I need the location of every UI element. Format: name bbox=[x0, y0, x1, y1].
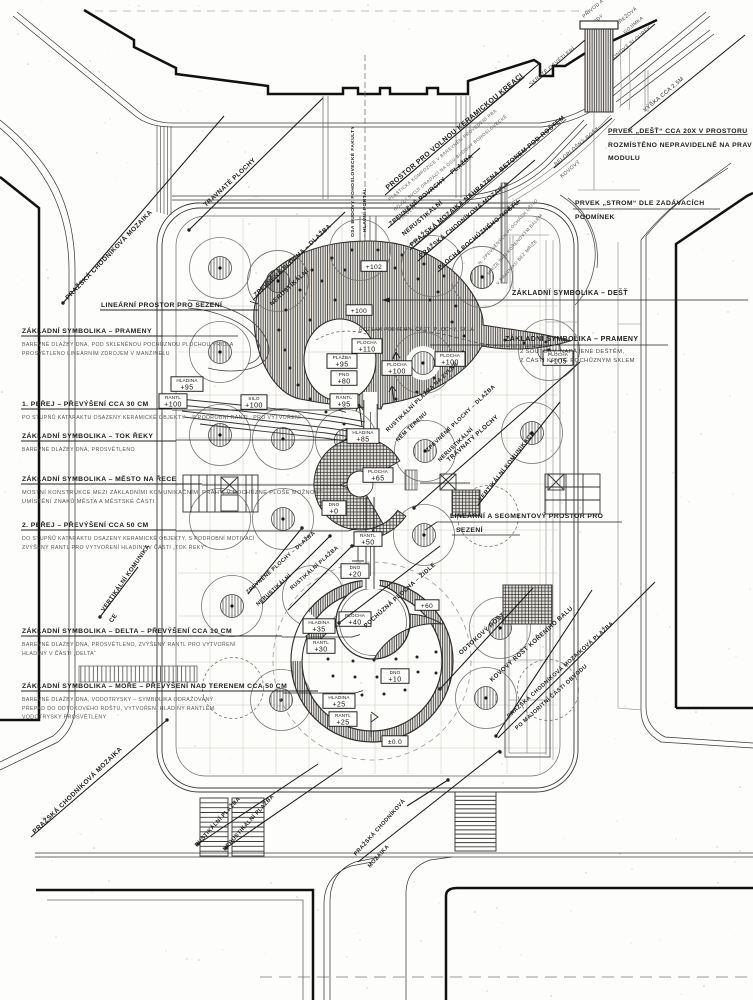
svg-text:SILO: SILO bbox=[248, 396, 259, 401]
svg-text:DNO: DNO bbox=[390, 670, 401, 675]
svg-text:+100: +100 bbox=[164, 401, 182, 408]
svg-text:+80: +80 bbox=[337, 378, 350, 385]
svg-text:+100: +100 bbox=[388, 368, 406, 375]
svg-text:LINEÁRNÍ PROSTOR PRO SEZENÍ: LINEÁRNÍ PROSTOR PRO SEZENÍ bbox=[101, 300, 223, 309]
svg-text:BAREVNÉ DLAŽBY DNA, PROSVĚTLEN: BAREVNÉ DLAŽBY DNA, PROSVĚTLENO bbox=[22, 445, 135, 453]
svg-text:ZÁKLADNÍ SYMBOLIKA – DEŠŤ: ZÁKLADNÍ SYMBOLIKA – DEŠŤ bbox=[512, 288, 628, 297]
svg-text:+25: +25 bbox=[332, 701, 345, 708]
svg-text:2. PEŘEJ – PŘEVÝŠENÍ CCA 50 CM: 2. PEŘEJ – PŘEVÝŠENÍ CCA 50 CM bbox=[22, 520, 149, 529]
svg-text:ZÁKLADNÍ SYMBOLIKA – PRAMENY: ZÁKLADNÍ SYMBOLIKA – PRAMENY bbox=[22, 326, 152, 335]
svg-text:+25: +25 bbox=[336, 719, 349, 726]
svg-text:MOSTNÍ KONSTRUKCE MEZI ZÁKLADN: MOSTNÍ KONSTRUKCE MEZI ZÁKLADNÍMI KOMUNI… bbox=[22, 488, 323, 496]
svg-text:ZÁKLADNÍ SYMBOLIKA – DELTA – P: ZÁKLADNÍ SYMBOLIKA – DELTA – PŘEVÝŠENÍ C… bbox=[22, 626, 232, 635]
svg-text:HLADINY V ČÁSTI „DELTA“: HLADINY V ČÁSTI „DELTA“ bbox=[22, 650, 96, 657]
svg-text:+50: +50 bbox=[361, 539, 374, 546]
svg-text:BAREVNÉ DLAŽBY DNA, PROSVĚTLEN: BAREVNÉ DLAŽBY DNA, PROSVĚTLENO, ZVÝŠENÝ… bbox=[22, 640, 236, 648]
svg-text:ZÁKLADNÍ SYMBOLIKA – MĚSTO NA: ZÁKLADNÍ SYMBOLIKA – MĚSTO NA ŘECE bbox=[22, 474, 177, 483]
svg-text:HLADINA: HLADINA bbox=[328, 695, 350, 700]
svg-text:DNO: DNO bbox=[329, 502, 340, 507]
svg-text:+100: +100 bbox=[351, 308, 367, 315]
svg-text:ZVÝŠENÝ RANTL PRO VYTVOŘENÍ HL: ZVÝŠENÝ RANTL PRO VYTVOŘENÍ HLADINY V ČÁ… bbox=[22, 543, 207, 551]
svg-text:ZÁKLADNÍ SYMBOLIKA – TOK ŘEKY: ZÁKLADNÍ SYMBOLIKA – TOK ŘEKY bbox=[22, 431, 153, 440]
svg-text:PNO: PNO bbox=[339, 372, 350, 377]
svg-text:VODOTRYSKY PROSVĚTLENY: VODOTRYSKY PROSVĚTLENY bbox=[22, 713, 107, 721]
svg-text:±0.0: ±0.0 bbox=[388, 739, 402, 746]
svg-text:RANTL: RANTL bbox=[335, 713, 351, 718]
svg-text:1. PEŘEJ – PŘEVÝŠENÍ CCA 30 CM: 1. PEŘEJ – PŘEVÝŠENÍ CCA 30 CM bbox=[22, 399, 149, 408]
svg-text:RANTL: RANTL bbox=[165, 395, 181, 400]
svg-text:RANTL: RANTL bbox=[360, 533, 376, 538]
svg-text:+110: +110 bbox=[358, 346, 375, 353]
svg-text:ROZMÍSTĚNO NEPRAVIDELNĚ NA PRA: ROZMÍSTĚNO NEPRAVIDELNĚ NA PRAV bbox=[608, 140, 752, 149]
svg-text:RANTL: RANTL bbox=[336, 395, 352, 400]
svg-text:+60: +60 bbox=[421, 603, 433, 610]
svg-text:+10: +10 bbox=[388, 676, 401, 683]
svg-text:BAREVNÉ DLAŽBY DNA, POD SKLENĚ: BAREVNÉ DLAŽBY DNA, POD SKLENĚNOU POCHŮZ… bbox=[22, 340, 234, 348]
svg-text:UMÍSTĚNÍ ZNAKŮ MĚSTA A MĚSTSKÉ: UMÍSTĚNÍ ZNAKŮ MĚSTA A MĚSTSKÉ ČÁSTI bbox=[22, 497, 155, 505]
svg-text:ROZSAH PODZEMNÍ ČÁSTI PLOCHY,: ROZSAH PODZEMNÍ ČÁSTI PLOCHY, SKLA bbox=[359, 326, 474, 333]
svg-text:+20: +20 bbox=[348, 571, 361, 578]
svg-text:BAREVNÉ DLAŽBY DNA, VODOTRYSKY: BAREVNÉ DLAŽBY DNA, VODOTRYSKY – SYMBOLI… bbox=[22, 695, 214, 703]
svg-text:DO STUPŇŮ KATARAKTU OSAZENY KE: DO STUPŇŮ KATARAKTU OSAZENY KERAMICKÉ OB… bbox=[22, 535, 255, 542]
svg-text:PO STUPŇŮ KATARAKTU OSAZENY KE: PO STUPŇŮ KATARAKTU OSAZENY KERAMICKÉ OB… bbox=[22, 413, 301, 421]
svg-text:+95: +95 bbox=[180, 384, 193, 391]
svg-text:HLADINA: HLADINA bbox=[308, 620, 330, 625]
svg-text:+40: +40 bbox=[348, 619, 361, 626]
svg-text:+95: +95 bbox=[335, 361, 348, 368]
svg-text:MODULU: MODULU bbox=[608, 155, 640, 162]
svg-text:+100: +100 bbox=[245, 402, 263, 409]
svg-text:+0: +0 bbox=[330, 508, 339, 515]
svg-text:+95: +95 bbox=[337, 401, 350, 408]
svg-text:PROSVĚTLENO LINEÁRNÍM ZDROJEM: PROSVĚTLENO LINEÁRNÍM ZDROJEM V MANŽINEL… bbox=[22, 349, 170, 357]
svg-text:PRVEK „DEŠŤ“ CCA 20X V PROSTOR: PRVEK „DEŠŤ“ CCA 20X V PROSTORU bbox=[608, 126, 748, 135]
svg-text:+65: +65 bbox=[371, 475, 384, 482]
svg-text:2 SOUTOKY, NAPÁJENÉ DEŠTĚM,: 2 SOUTOKY, NAPÁJENÉ DEŠTĚM, bbox=[520, 347, 624, 355]
svg-text:HLADINA: HLADINA bbox=[352, 430, 374, 435]
svg-text:PLOCHA: PLOCHA bbox=[368, 469, 389, 474]
svg-text:SEZENÍ: SEZENÍ bbox=[456, 525, 484, 534]
svg-text:Z ČÁSTI KRYTÉ POCHŮZNÝM SKLEM: Z ČÁSTI KRYTÉ POCHŮZNÝM SKLEM bbox=[520, 357, 635, 364]
svg-text:PLOCHA: PLOCHA bbox=[440, 353, 461, 358]
svg-text:+102: +102 bbox=[366, 264, 382, 271]
svg-text:ZÁKLADNÍ SYMBOLIKA – PRAMENY: ZÁKLADNÍ SYMBOLIKA – PRAMENY bbox=[505, 334, 638, 343]
svg-text:PŘEPAD DO ODTOKOVÉHO ROŠTU, VY: PŘEPAD DO ODTOKOVÉHO ROŠTU, VYTVOŘENÍ HL… bbox=[22, 704, 214, 712]
svg-text:PLOCHA: PLOCHA bbox=[387, 362, 408, 367]
svg-text:HLADINA: HLADINA bbox=[176, 378, 198, 383]
svg-text:+30: +30 bbox=[314, 646, 327, 653]
svg-text:+85: +85 bbox=[356, 436, 369, 443]
svg-text:PRVEK „STROM“ DLE ZADÁVACÍCH: PRVEK „STROM“ DLE ZADÁVACÍCH bbox=[575, 198, 705, 207]
svg-text:LINEÁRNÍ A SEGMENTOVÝ PROSTOR: LINEÁRNÍ A SEGMENTOVÝ PROSTOR PRO bbox=[450, 511, 603, 520]
svg-text:DNO: DNO bbox=[350, 565, 361, 570]
svg-text:ZÁKLADNÍ SYMBOLIKA – MOŘE – PŘ: ZÁKLADNÍ SYMBOLIKA – MOŘE – PŘEVÝŠENÍ NA… bbox=[22, 681, 287, 690]
svg-text:PLOCHA: PLOCHA bbox=[357, 340, 378, 345]
svg-text:+35: +35 bbox=[312, 626, 325, 633]
svg-text:RANTL: RANTL bbox=[313, 640, 329, 645]
svg-text:PLAŽBA: PLAŽBA bbox=[333, 353, 353, 360]
